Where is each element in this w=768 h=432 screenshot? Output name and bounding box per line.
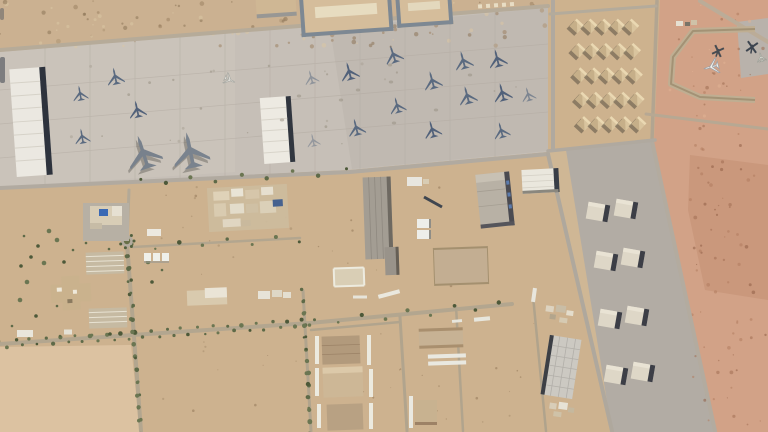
satellite-image xyxy=(0,0,768,432)
building-hangar-a xyxy=(9,67,52,177)
tree xyxy=(134,368,138,372)
tree xyxy=(474,308,478,312)
building-compound-a-bldg-2 xyxy=(322,366,363,397)
tree xyxy=(124,246,127,249)
building-shade-strip-l2 xyxy=(315,368,319,396)
building-south-strip-c xyxy=(409,396,413,428)
building-berm-compound-2 xyxy=(395,0,453,28)
tree xyxy=(212,324,215,327)
shrub xyxy=(29,255,33,259)
building-shade-strip-l1 xyxy=(315,336,319,364)
building-small-compound xyxy=(207,184,289,232)
tree xyxy=(302,299,305,302)
shrub xyxy=(62,260,66,264)
building-hangar-c xyxy=(521,168,559,194)
stain xyxy=(356,89,360,92)
tree xyxy=(305,348,308,351)
tree xyxy=(306,382,310,386)
tree xyxy=(81,340,84,343)
shrub xyxy=(55,238,60,243)
building-hangar-b xyxy=(260,96,296,164)
building-parking-b xyxy=(89,307,128,328)
shrub xyxy=(56,305,59,308)
building-south-bldg-c xyxy=(415,400,437,425)
shrub xyxy=(150,280,154,284)
building-pool-compound xyxy=(83,203,129,241)
tree xyxy=(186,333,190,337)
tree xyxy=(15,338,18,341)
tree xyxy=(308,420,313,425)
tree xyxy=(302,324,307,329)
tree xyxy=(204,333,206,335)
tree xyxy=(291,169,295,173)
shrub xyxy=(23,235,26,238)
dark-mark xyxy=(0,8,4,20)
tree xyxy=(135,394,139,398)
building-flat-roof xyxy=(433,246,488,286)
building-compound-a-bldg-1 xyxy=(322,335,361,364)
stain xyxy=(280,119,284,122)
tree xyxy=(130,278,133,281)
tree xyxy=(300,288,303,291)
building-compound-a-bldg-3 xyxy=(327,403,364,430)
tree xyxy=(166,328,169,331)
tree xyxy=(360,313,364,317)
tree xyxy=(251,243,254,246)
shrub xyxy=(11,325,14,328)
tree xyxy=(308,323,311,326)
stain xyxy=(389,81,393,84)
tree xyxy=(274,235,278,239)
tree xyxy=(149,329,153,333)
dark-mark xyxy=(0,57,5,83)
tree xyxy=(337,321,340,324)
tree xyxy=(130,330,134,334)
stain xyxy=(392,122,396,125)
tree xyxy=(405,308,409,312)
tree xyxy=(164,181,168,185)
building-compound-b-bldg xyxy=(419,327,464,349)
tree xyxy=(131,304,135,308)
shrub xyxy=(108,248,111,251)
tree xyxy=(139,418,143,422)
tree xyxy=(118,331,123,336)
tree xyxy=(128,338,131,341)
tree xyxy=(306,395,310,399)
tree xyxy=(126,266,131,271)
shrub xyxy=(47,229,52,234)
tree xyxy=(214,180,218,184)
tree xyxy=(201,244,204,247)
tree xyxy=(226,325,229,328)
tree xyxy=(27,337,30,340)
tree xyxy=(300,318,304,322)
tree xyxy=(45,337,48,340)
tree xyxy=(139,178,142,181)
building-frame-building xyxy=(334,267,365,286)
tree xyxy=(130,245,133,248)
shrub xyxy=(108,332,112,336)
building-shade-strip-r1 xyxy=(367,335,371,365)
tree xyxy=(384,317,388,321)
tree xyxy=(293,324,297,328)
tree xyxy=(305,359,309,363)
tree xyxy=(307,407,310,410)
tree xyxy=(285,320,289,324)
shrub xyxy=(25,280,30,285)
tree xyxy=(497,300,501,304)
tree xyxy=(130,234,133,237)
building-shade-strip-r2 xyxy=(369,369,373,397)
stain xyxy=(339,99,343,102)
building-berm-small xyxy=(255,0,296,18)
stain xyxy=(297,95,301,98)
building-gray-annex xyxy=(385,247,400,275)
tree xyxy=(240,173,244,177)
building-sheds-row xyxy=(144,253,169,263)
building-white-bldg-sw2 xyxy=(64,330,72,335)
scene-svg xyxy=(0,0,768,432)
shrub xyxy=(85,242,88,245)
tree xyxy=(453,304,457,308)
tree xyxy=(36,343,39,346)
shrub xyxy=(72,249,75,252)
tree xyxy=(306,371,311,376)
tree xyxy=(127,280,130,283)
tree xyxy=(136,381,139,384)
tree xyxy=(262,328,265,331)
stain xyxy=(468,74,472,77)
tree xyxy=(74,334,77,337)
building-shade-strip-l3 xyxy=(317,404,321,428)
building-parking-a xyxy=(86,251,125,274)
shrub xyxy=(36,244,40,248)
tree xyxy=(316,174,320,178)
tree xyxy=(217,331,220,334)
tree xyxy=(298,240,301,243)
building-maintenance-hangar xyxy=(363,177,394,260)
shrub xyxy=(161,269,164,272)
region-sand-southwest xyxy=(0,345,140,432)
building-shade-strip-r3 xyxy=(369,403,373,429)
tree xyxy=(196,326,199,329)
tree xyxy=(96,339,99,342)
tree xyxy=(21,343,24,346)
tree xyxy=(239,323,244,328)
stain xyxy=(434,109,438,112)
tree xyxy=(313,318,316,321)
shrub xyxy=(59,335,62,338)
tree xyxy=(429,314,432,317)
tree xyxy=(249,329,252,332)
shrub xyxy=(34,314,38,318)
tree xyxy=(255,322,258,325)
tree xyxy=(271,320,274,323)
tree xyxy=(5,346,9,350)
tree xyxy=(125,254,129,258)
shrub xyxy=(18,298,23,303)
tree xyxy=(67,341,70,344)
tree xyxy=(133,343,135,345)
building-shed-single xyxy=(147,229,161,236)
stain xyxy=(388,64,392,67)
building-light-industrial xyxy=(475,171,514,228)
tree xyxy=(130,292,133,295)
tree xyxy=(303,311,306,314)
building-white-bldg-sw1 xyxy=(17,330,33,337)
tree xyxy=(279,326,282,329)
tree xyxy=(232,329,236,333)
tree xyxy=(177,240,182,245)
tree xyxy=(51,342,55,346)
tree xyxy=(137,405,141,409)
tree xyxy=(141,335,144,338)
tree xyxy=(154,248,156,250)
tree xyxy=(172,334,175,337)
tree xyxy=(130,318,135,323)
tree xyxy=(179,326,182,329)
tree xyxy=(226,237,229,240)
building-berm-compound-1 xyxy=(299,0,394,37)
tree xyxy=(188,175,192,179)
tree xyxy=(303,336,305,338)
tree xyxy=(345,167,348,170)
tree xyxy=(134,357,137,360)
shrub xyxy=(42,261,47,266)
shrub xyxy=(88,334,93,339)
building-top-strip-2 xyxy=(353,296,367,299)
tree xyxy=(158,335,161,338)
shrub xyxy=(19,264,23,268)
tree xyxy=(119,243,122,246)
tree xyxy=(133,240,136,243)
tree xyxy=(265,176,269,180)
tree xyxy=(113,339,116,342)
